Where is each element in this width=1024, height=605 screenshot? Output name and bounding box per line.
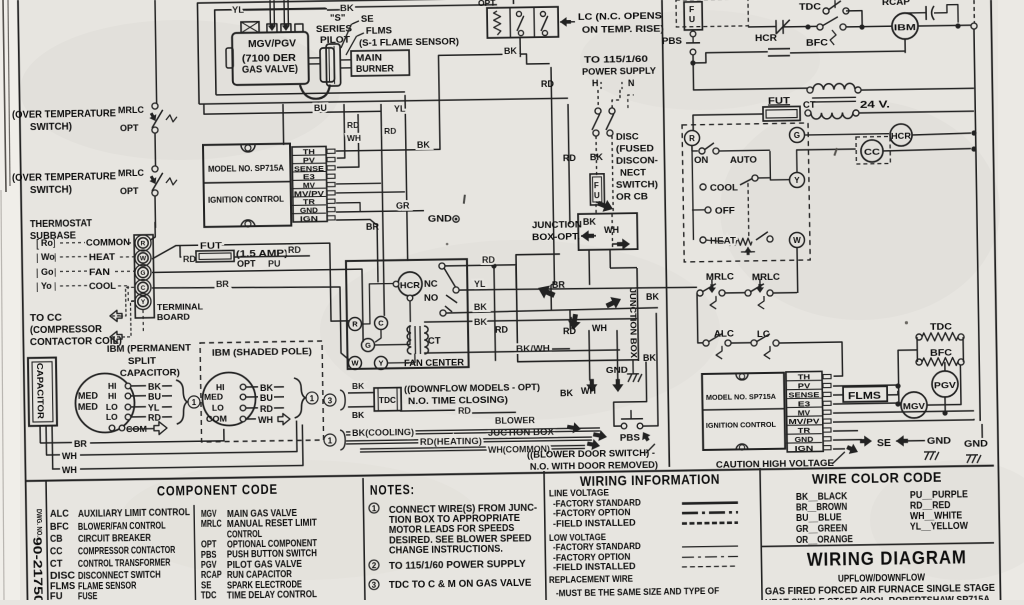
svg-text:ALC: ALC [714,329,734,340]
svg-text:|: | [36,282,39,293]
svg-text:MRLC: MRLC [118,105,145,115]
svg-text:BK: BK [646,292,660,302]
svg-text:NC: NC [424,279,438,290]
svg-text:GND: GND [428,214,452,225]
svg-text:R: R [689,134,695,143]
svg-text:MGV/PGV: MGV/PGV [248,38,296,50]
svg-text:BU: BU [314,103,327,113]
svg-text:BU: BU [260,393,273,403]
svg-text:BK: BK [560,388,574,398]
svg-text:(COMPRESSOR: (COMPRESSOR [30,324,103,336]
svg-text:BK: BK [352,381,365,391]
svg-text:U: U [594,191,600,200]
svg-text:RD: RD [495,325,509,335]
svg-text:SE: SE [877,437,891,449]
svg-text:WH: WH [581,386,596,396]
svg-text:FUSE: FUSE [78,591,98,600]
svg-text:BK: BK [583,217,597,227]
svg-text:]: ] [53,238,56,248]
svg-text:1: 1 [328,436,333,445]
svg-text:CC: CC [864,147,880,157]
svg-text:COM: COM [206,414,227,424]
svg-text:ON: ON [694,155,709,166]
svg-text:MED: MED [78,391,99,401]
svg-text:W: W [793,236,801,245]
svg-text:OR__ORANGE: OR__ORANGE [796,534,853,546]
svg-text:MED: MED [204,392,223,402]
svg-text:ON TEMP. RISE): ON TEMP. RISE) [582,24,664,36]
svg-text:OFF: OFF [715,206,735,217]
svg-text:WH: WH [62,451,77,461]
svg-text:HI: HI [108,381,117,391]
svg-text:BURNER: BURNER [356,63,394,75]
svg-text:-FIELD INSTALLED: -FIELD INSTALLED [553,561,636,573]
svg-text:W: W [351,359,359,368]
svg-text:BR: BR [74,439,88,449]
svg-text:F: F [689,4,694,14]
svg-text:UPFLOW/DOWNFLOW: UPFLOW/DOWNFLOW [838,573,926,585]
svg-text:TDC: TDC [379,395,396,405]
svg-text:COMMON: COMMON [86,237,130,249]
svg-text:PBS: PBS [662,36,682,47]
svg-text:|: | [36,253,39,264]
svg-text:RD: RD [458,406,472,416]
svg-text:HCR: HCR [755,33,777,44]
svg-text:SWITCH): SWITCH) [30,184,72,196]
svg-text:TIME DELAY CONTROL: TIME DELAY CONTROL [227,589,317,600]
svg-text:GR__GREEN: GR__GREEN [796,523,847,535]
svg-text:BLOWER: BLOWER [495,415,535,427]
svg-text:RD__RED: RD__RED [910,500,951,512]
svg-text:CHANGE INSTRUCTIONS.: CHANGE INSTRUCTIONS. [389,544,503,557]
svg-text:W: W [140,255,147,262]
svg-text:1: 1 [372,504,377,513]
svg-text:JUNCTION BOX: JUNCTION BOX [628,288,639,359]
svg-text:WIRING INFORMATION: WIRING INFORMATION [580,472,720,489]
svg-text:DISC: DISC [616,132,639,143]
svg-text:LO: LO [106,412,118,422]
svg-text:PBS: PBS [620,433,640,444]
svg-text:WH: WH [347,133,361,143]
svg-text:PU: PU [268,259,281,269]
svg-text:BFC: BFC [50,522,69,533]
svg-text:COOL: COOL [89,281,116,292]
svg-text:G: G [365,341,371,350]
svg-text:OPT: OPT [120,186,139,196]
svg-text:BK: BK [148,382,162,392]
svg-text:IBM (PERMANENT: IBM (PERMANENT [107,343,191,355]
svg-text:NO: NO [424,293,438,304]
svg-text:BK: BK [352,410,365,420]
svg-text:DWG. NO.: DWG. NO. [35,509,42,537]
svg-text:|: | [54,281,57,291]
svg-text:RD(HEATING): RD(HEATING) [420,436,482,447]
svg-text:NECT: NECT [620,168,646,179]
svg-text:RD: RD [482,255,496,265]
svg-text:COMPRESSOR CONTACTOR: COMPRESSOR CONTACTOR [78,545,176,558]
svg-text:TO 115/1/60 POWER SUPPLY: TO 115/1/60 POWER SUPPLY [389,559,526,572]
svg-text:TO CC: TO CC [30,312,62,324]
svg-text:PGV: PGV [934,380,957,390]
svg-text:TDC: TDC [930,322,952,333]
svg-text:Y: Y [794,176,800,185]
svg-text:BK: BK [260,383,274,393]
svg-text:OR CB: OR CB [616,192,648,204]
svg-text:SERIES: SERIES [316,23,352,35]
svg-text:3: 3 [328,396,333,405]
svg-text:((DOWNFLOW MODELS - OPT): ((DOWNFLOW MODELS - OPT) [404,382,540,395]
svg-text:BK(COOLING): BK(COOLING) [352,427,414,438]
svg-text:YL: YL [148,403,160,413]
svg-text:MGV: MGV [903,401,926,411]
svg-text:LO: LO [212,403,224,413]
svg-text:-FIELD INSTALLED: -FIELD INSTALLED [553,518,636,530]
svg-text:FLMS: FLMS [848,390,882,402]
svg-text:CT: CT [803,100,816,111]
svg-text:CAUTION HIGH VOLTAGE: CAUTION HIGH VOLTAGE [716,458,834,471]
svg-text:CIRCUIT BREAKER: CIRCUIT BREAKER [78,533,152,545]
svg-text:ALC: ALC [50,509,69,520]
svg-text:SWITCH): SWITCH) [30,121,72,133]
svg-text:Y: Y [141,299,146,306]
svg-text:REPLACEMENT WIRE: REPLACEMENT WIRE [549,574,633,586]
svg-text:U: U [689,14,695,24]
svg-text:RD: RD [183,254,197,264]
svg-text:GAS VALVE): GAS VALVE) [242,64,298,76]
svg-text:RD: RD [288,245,302,255]
svg-text:LO: LO [106,402,118,412]
svg-text:IGN: IGN [795,444,814,453]
svg-text:IBM (SHADED POLE): IBM (SHADED POLE) [212,346,312,359]
svg-text:BLOWER/FAN CONTROL: BLOWER/FAN CONTROL [78,521,166,533]
svg-text:COMPONENT CODE: COMPONENT CODE [157,481,278,499]
svg-text:R: R [141,240,146,247]
svg-text:RD: RD [260,404,274,414]
svg-text:G: G [794,131,800,140]
svg-text:BU: BU [148,392,161,402]
svg-text:MRLC: MRLC [752,272,780,283]
svg-text:YL__YELLOW: YL__YELLOW [910,521,969,533]
svg-text:BOARD: BOARD [157,312,190,323]
svg-text:SE: SE [361,14,374,25]
svg-text:24 V.: 24 V. [860,100,890,111]
svg-text:BK: BK [417,140,431,150]
svg-text:1: 1 [192,398,197,407]
svg-text:TDC TO C & M ON GAS VALVE: TDC TO C & M ON GAS VALVE [389,578,532,591]
svg-text:WH: WH [62,465,77,475]
svg-text:WIRING DIAGRAM: WIRING DIAGRAM [807,548,967,571]
svg-text:THERMOSTAT: THERMOSTAT [30,218,92,230]
svg-text:MODEL NO. SP715A: MODEL NO. SP715A [706,392,776,402]
svg-text:WIRE COLOR CODE: WIRE COLOR CODE [812,469,942,487]
svg-text:IBM: IBM [894,22,916,32]
svg-text:TERMINAL: TERMINAL [157,301,203,312]
svg-text:IGNITION CONTROL: IGNITION CONTROL [706,420,777,430]
svg-text:OPT: OPT [478,0,496,8]
svg-text:1: 1 [310,394,315,403]
svg-text:G: G [140,270,145,277]
svg-text:CAPACITOR: CAPACITOR [35,363,45,419]
svg-text:(FUSED: (FUSED [616,143,654,155]
svg-text:C: C [141,285,146,292]
svg-text:BK: BK [474,302,488,312]
svg-text:HCR: HCR [400,280,420,290]
svg-text:BFC: BFC [806,38,828,49]
svg-text:(7100 DER: (7100 DER [242,53,297,65]
svg-text:BK/WH: BK/WH [516,344,550,355]
svg-text:BU__BLUE: BU__BLUE [796,512,842,524]
svg-text:AUTO: AUTO [730,155,757,166]
svg-text:WH: WH [592,323,607,333]
svg-text:|: | [54,267,57,277]
svg-text:IGNITION CONTROL: IGNITION CONTROL [208,195,284,205]
svg-text:(OVER TEMPERATURE: (OVER TEMPERATURE [12,171,116,184]
svg-text:IGN: IGN [300,214,318,223]
svg-text:RD: RD [541,79,555,89]
svg-text:RD: RD [563,153,577,163]
svg-text:|: | [36,268,39,279]
svg-text:TO 115/1/60: TO 115/1/60 [584,54,648,66]
svg-text:MODEL NO. SP715A: MODEL NO. SP715A [208,164,284,174]
svg-text:"S": "S" [330,13,346,24]
svg-text:NOTES:: NOTES: [370,482,415,498]
svg-text:OPT: OPT [120,123,139,133]
svg-text:GR: GR [396,201,410,211]
svg-text:LC (N.C. OPENS: LC (N.C. OPENS [578,11,662,23]
svg-text:BR: BR [216,279,230,289]
svg-text:YL: YL [394,104,406,114]
svg-text:WH: WH [258,415,273,425]
svg-text:BFC: BFC [930,348,952,359]
svg-text:MRLC: MRLC [118,168,145,178]
svg-text:RD: RD [384,126,396,136]
svg-text:N: N [628,78,635,88]
svg-text:GND: GND [927,436,951,447]
svg-text:[: [ [36,238,39,250]
svg-text:BK: BK [474,317,488,327]
svg-text:|: | [54,252,57,262]
svg-text:BK: BK [504,46,518,56]
svg-text:C: C [378,319,384,328]
svg-text:H: H [592,78,599,88]
svg-text:POWER SUPPLY: POWER SUPPLY [582,66,657,78]
svg-text:HCR: HCR [891,131,911,141]
svg-text:YL: YL [474,279,486,289]
svg-text:N.O. WITH DOOR REMOVED): N.O. WITH DOOR REMOVED) [530,460,658,473]
svg-text:DISCON-: DISCON- [616,155,658,167]
svg-text:AUXILIARY LIMIT CONTROL: AUXILIARY LIMIT CONTROL [78,507,190,520]
svg-text:MAIN: MAIN [356,53,382,64]
svg-text:3: 3 [372,581,377,590]
svg-text:Ro: Ro [41,238,54,248]
svg-text:CB: CB [50,534,63,545]
svg-text:CONTROL TRANSFORMER: CONTROL TRANSFORMER [78,558,171,570]
svg-text:CC: CC [50,546,63,557]
svg-text:MED: MED [78,402,99,412]
svg-text:JUNCTION: JUNCTION [532,219,582,231]
svg-text:F: F [594,181,599,190]
svg-text:HI: HI [108,391,117,401]
svg-text:COOL: COOL [710,183,738,194]
svg-text:HI: HI [216,382,225,392]
svg-text:BK: BK [643,353,657,363]
svg-text:90-21750-: 90-21750- [30,537,43,600]
svg-text:FLMS: FLMS [366,26,392,37]
svg-text:R: R [352,320,358,329]
svg-text:Yo: Yo [41,281,52,291]
svg-text:(OVER TEMPERATURE: (OVER TEMPERATURE [12,108,116,121]
svg-text:HEAT: HEAT [89,252,115,263]
svg-text:CT: CT [428,336,441,347]
svg-text:MRLC: MRLC [201,519,222,530]
svg-text:MRLC: MRLC [706,272,734,283]
svg-text:BOX-OPT.: BOX-OPT. [532,231,580,243]
svg-text:2: 2 [372,561,377,570]
svg-text:YL: YL [232,5,245,16]
svg-text:Go: Go [41,267,54,277]
svg-text:RCAP: RCAP [882,0,911,8]
svg-text:GND: GND [964,439,988,450]
svg-text:CAPACITOR): CAPACITOR) [120,367,180,379]
svg-text:TDC: TDC [799,2,821,13]
svg-text:FAN: FAN [89,267,110,278]
svg-text:FU: FU [50,591,63,600]
svg-text:BR: BR [366,222,380,232]
svg-text:WH: WH [604,225,619,235]
svg-text:OPT: OPT [237,259,256,269]
svg-text:TDC: TDC [201,590,217,600]
svg-text:(S-1 FLAME SENSOR): (S-1 FLAME SENSOR) [359,36,459,49]
svg-text:SPLIT: SPLIT [128,356,156,367]
svg-text:CT: CT [50,559,63,570]
svg-text:SWITCH): SWITCH) [616,179,658,191]
svg-text:Y: Y [378,359,383,368]
